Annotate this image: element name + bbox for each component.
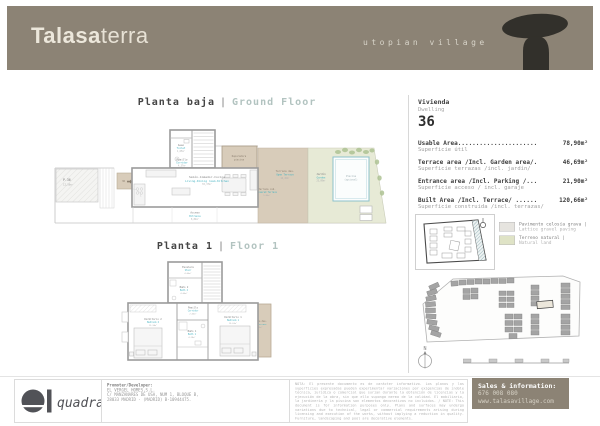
legend-item-gravel: Pavimento celosía grava | Lattice gravel…: [499, 222, 591, 232]
legend-label-en: Natural land: [519, 241, 565, 246]
bath1-area: 4,28m²: [188, 336, 195, 339]
scale-bar: [463, 354, 573, 366]
legend: Pavimento celosía grava | Lattice gravel…: [499, 222, 591, 276]
bath2-label-en: Bath 2: [180, 289, 189, 292]
title-separator: |: [220, 97, 227, 108]
floor1-corridor-label-en: Corridor: [188, 310, 199, 313]
plot-marker-icon: [480, 222, 485, 227]
legal-disclaimer: NOTA: El presente documento es de caráct…: [295, 382, 465, 422]
footer-cell-divider: [101, 380, 102, 422]
brochure-page: Talasaterra utopian village Planta baja|…: [0, 0, 600, 426]
entrance-area-value: 8,84m²: [191, 218, 199, 221]
area-label: Entrance area /Incl. Parking /...: [418, 178, 537, 185]
pool: Piscina (opcional): [333, 157, 369, 201]
title-en: Ground Floor: [232, 97, 316, 108]
legal-disclaimer-text: NOTA: El presente documento es de caráct…: [295, 382, 464, 421]
unit-label-es: Vivienda: [418, 98, 449, 106]
tagline-text: utopian village: [363, 38, 488, 47]
area-summary-list: Usable Area......................78,90m²…: [418, 140, 588, 216]
area-label-es: Superficie construida /incl. terrazas/: [418, 204, 588, 211]
covered-terrace-label-en: Covered Terrace: [257, 191, 277, 194]
quadratia-logo-text: quadratia: [57, 396, 101, 411]
parking-code: P-36: [63, 178, 71, 182]
open-terrace-area: 16,26m²: [280, 177, 289, 180]
unit-number: 36: [418, 114, 449, 130]
living-room: Salón-Comedor-Cocina Living-Dining room-…: [132, 168, 258, 207]
area-label-es: Superficie acceso / incl. garaje: [418, 185, 588, 192]
entry-tag: 36: [122, 179, 126, 183]
area-label: Terrace area /Incl. Garden area/.: [418, 159, 537, 166]
living-label-en: Living-Dining room-Kitchen: [185, 179, 229, 183]
stair-label-en: Stair: [185, 269, 192, 272]
compass-icon: N: [415, 344, 435, 372]
bedroom1-area: 13,62m²: [229, 322, 237, 325]
sales-info-box: Sales & information: 676 008 080 www.tal…: [472, 378, 569, 409]
area-value: 120,66m²: [559, 197, 588, 204]
sales-phone: 676 008 080: [478, 390, 569, 398]
area-label: Built Area /Incl. Terrace/ ......: [418, 197, 537, 204]
toilet-area: 1,65m²: [177, 150, 185, 153]
sales-title: Sales & information:: [478, 382, 569, 390]
pool-purifier-box: Depuradora piscina: [222, 146, 257, 170]
purifier-label-2: piscina: [234, 158, 245, 161]
floor1-top-block: Escalera Stair 4,06m² Baño 2 Bath 2 4,00…: [168, 262, 222, 303]
area-value: 46,69m²: [563, 159, 588, 166]
area-value: 78,90m²: [563, 140, 588, 147]
unit-label-en: Dwelling: [418, 107, 449, 113]
sales-website[interactable]: www.talasavillage.com: [478, 398, 569, 406]
floor1-plan: Terraza des. Open Terrace 4,80m² Escaler…: [118, 256, 318, 372]
area-value: 21,90m²: [563, 178, 588, 185]
living-area-value: 33,37m²: [202, 183, 213, 186]
unit-block: Vivienda Dwelling 36: [418, 98, 449, 130]
title-separator: |: [218, 241, 225, 252]
bedroom2-label-en: Bedroom 2: [147, 321, 160, 324]
footer-cell-divider: [289, 380, 290, 422]
covered-terrace-area: 5,84m²: [263, 194, 270, 197]
promoter-line: 28033 MADRID - (MADRID) B-10944475.: [107, 397, 287, 402]
area-label: Usable Area......................: [418, 140, 537, 147]
house-top-block: Aseo Toilet 1,65m² Pasillo Corridor 4,37…: [170, 130, 215, 168]
footer-table: quadratia Promoter/Developer: EL VERGEL …: [14, 379, 468, 423]
floor1-balconies: [122, 312, 128, 342]
area-item-entrance: Entrance area /Incl. Parking /...21,90m²…: [418, 178, 588, 192]
bedroom1-label-en: Bedroom 1: [227, 319, 240, 322]
highlighted-unit: [537, 300, 554, 308]
area-label-es: Superficie útil: [418, 147, 588, 154]
terrace-area: Terraza des. Open Terrace 16,26m² Terraz…: [257, 148, 308, 223]
title-es: Planta baja: [138, 97, 215, 108]
open-terrace-label-es: Terraza des.: [276, 169, 295, 173]
bedroom2-area: 12,34m²: [149, 324, 157, 327]
parking-area: P-36 12,50m²: [56, 169, 98, 202]
info-panel: Vivienda Dwelling 36 Usable Area........…: [415, 96, 593, 374]
ground-floor-plan: P-36 12,50m² 36 Terraza des. Open Terrac…: [52, 126, 402, 236]
entrance-strip: Acceso Entrance 8,84m²: [133, 207, 217, 223]
natural-land-swatch: [499, 236, 515, 246]
umbrella-tree-icon: [495, 7, 585, 70]
floor1-main-block: Pasillo Corridor 2,06m² Baño 1 Bath 1 4,…: [128, 303, 258, 360]
legend-item-natural: Terreno natural | Natural land: [499, 236, 591, 246]
quadratia-logo: quadratia: [19, 384, 101, 418]
area-item-usable: Usable Area......................78,90m²…: [418, 140, 588, 154]
brand-text-bold: Talasa: [31, 23, 101, 48]
bath1-label-en: Bath 1: [188, 333, 197, 336]
stair-area: 4,06m²: [184, 272, 191, 275]
brand-text-light: terra: [101, 23, 149, 48]
legend-label-en: Lattice gravel paving: [519, 227, 587, 232]
site-plan: [413, 272, 591, 348]
promoter-block: Promoter/Developer: EL VERGEL HOMES,S.L.…: [107, 383, 287, 421]
bath2-area: 4,00m²: [180, 292, 187, 295]
footer-separator: [0, 376, 600, 377]
gravel-swatch: [499, 222, 515, 232]
pool-label-opt: (opcional): [344, 178, 357, 181]
area-label-es: Superficie terrazas /incl. jardín/: [418, 166, 588, 173]
entry-block: 36: [117, 173, 133, 189]
title-en: Floor 1: [230, 241, 279, 252]
garden-area-value: 23,09m²: [316, 180, 325, 183]
utility-boxes: [360, 206, 372, 221]
floor1-corridor-area: 2,06m²: [189, 313, 196, 316]
title-es: Planta 1: [157, 241, 213, 252]
brand-logo: Talasaterra: [31, 23, 149, 49]
area-item-terrace: Terrace area /Incl. Garden area/.46,69m²…: [418, 159, 588, 173]
floor1-title: Planta 1|Floor 1: [118, 241, 318, 252]
vertical-divider: [408, 95, 409, 373]
header: Talasaterra utopian village: [7, 6, 593, 70]
garden-label-es: Jardín: [316, 172, 326, 176]
plot-diagram: [415, 214, 495, 270]
parking-area-value: 12,50m²: [63, 184, 74, 187]
driveway: [100, 168, 114, 208]
ground-floor-title: Planta baja|Ground Floor: [52, 97, 402, 108]
area-item-built: Built Area /Incl. Terrace/ ......120,66m…: [418, 197, 588, 211]
